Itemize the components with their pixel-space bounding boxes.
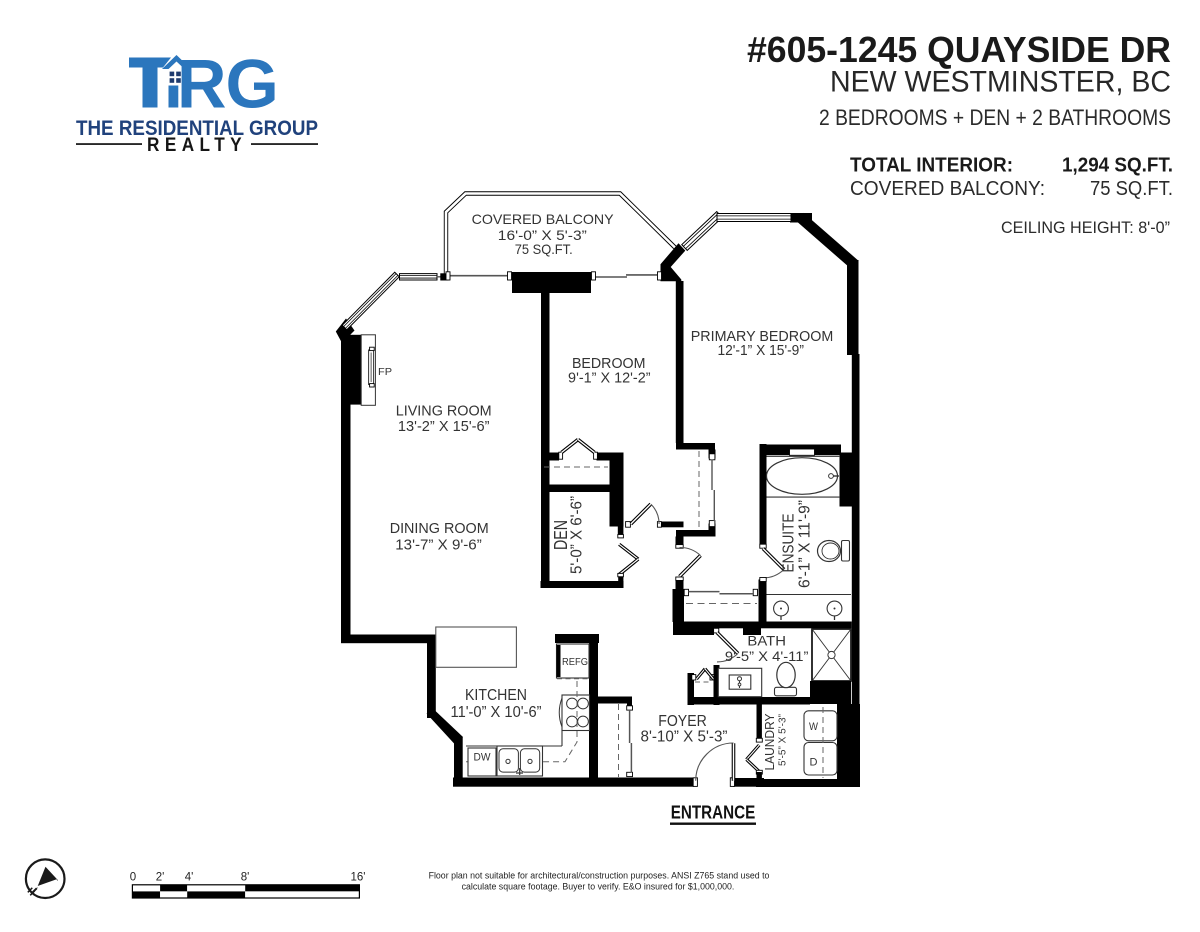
- svg-text:8'-10” X 5'-3”: 8'-10” X 5'-3”: [641, 729, 728, 746]
- svg-text:D: D: [810, 757, 818, 769]
- svg-text:2': 2': [156, 872, 165, 884]
- svg-text:8': 8': [241, 872, 250, 884]
- svg-text:COVERED BALCONY: COVERED BALCONY: [472, 211, 615, 227]
- svg-text:5'-5” X 5'-3”: 5'-5” X 5'-3”: [778, 714, 789, 766]
- svg-text:9'-1” X 12'-2”: 9'-1” X 12'-2”: [568, 371, 651, 387]
- svg-text:BEDROOM: BEDROOM: [572, 356, 646, 372]
- svg-text:DW: DW: [474, 752, 492, 764]
- svg-text:RG: RG: [177, 46, 278, 123]
- svg-text:9'-5” X 4'-11”: 9'-5” X 4'-11”: [725, 648, 809, 664]
- svg-text:LIVING ROOM: LIVING ROOM: [396, 403, 492, 419]
- svg-text:FOYER: FOYER: [658, 713, 707, 730]
- svg-text:12'-1” X 15'-9”: 12'-1” X 15'-9”: [717, 343, 804, 359]
- svg-text:ENSUITE: ENSUITE: [781, 514, 798, 573]
- svg-text:6'-1” X 11'-9”: 6'-1” X 11'-9”: [797, 500, 814, 588]
- svg-text:W: W: [809, 721, 819, 733]
- svg-text:#605-1245 QUAYSIDE DR: #605-1245 QUAYSIDE DR: [747, 29, 1171, 70]
- svg-text:FP: FP: [378, 366, 392, 378]
- svg-text:CEILING HEIGHT: 8'-0”: CEILING HEIGHT: 8'-0”: [1001, 218, 1170, 237]
- svg-text:LAUNDRY: LAUNDRY: [762, 713, 777, 770]
- svg-text:13'-7” X 9'-6”: 13'-7” X 9'-6”: [395, 538, 482, 554]
- svg-text:1,294 SQ.FT.: 1,294 SQ.FT.: [1062, 155, 1173, 177]
- svg-text:75 SQ.FT.: 75 SQ.FT.: [515, 241, 573, 257]
- svg-text:4': 4': [185, 872, 194, 884]
- svg-text:ENTRANCE: ENTRANCE: [671, 803, 756, 823]
- svg-text:11'-0” X 10'-6”: 11'-0” X 10'-6”: [451, 704, 542, 721]
- svg-text:KITCHEN: KITCHEN: [465, 687, 527, 704]
- svg-text:75 SQ.FT.: 75 SQ.FT.: [1090, 178, 1173, 200]
- svg-text:13'-2” X 15'-6”: 13'-2” X 15'-6”: [398, 419, 490, 435]
- svg-text:REFG: REFG: [562, 657, 588, 668]
- svg-text:REALTY: REALTY: [147, 135, 247, 156]
- svg-text:2 BEDROOMS + DEN + 2 BATHROOMS: 2 BEDROOMS + DEN + 2 BATHROOMS: [819, 105, 1171, 130]
- svg-text:TOTAL INTERIOR:: TOTAL INTERIOR:: [850, 155, 1013, 177]
- svg-text:COVERED BALCONY:: COVERED BALCONY:: [850, 178, 1045, 200]
- svg-text:0: 0: [130, 872, 136, 884]
- svg-text:5'-0” X 6'-6”: 5'-0” X 6'-6”: [569, 496, 586, 574]
- svg-text:calculate square footage. Buye: calculate square footage. Buyer to verif…: [462, 881, 735, 891]
- svg-text:BATH: BATH: [747, 634, 786, 649]
- svg-text:Floor plan not suitable for ar: Floor plan not suitable for architectura…: [429, 871, 770, 881]
- svg-text:NEW WESTMINSTER, BC: NEW WESTMINSTER, BC: [830, 66, 1171, 99]
- svg-text:DINING ROOM: DINING ROOM: [390, 521, 489, 537]
- svg-text:16': 16': [351, 872, 366, 884]
